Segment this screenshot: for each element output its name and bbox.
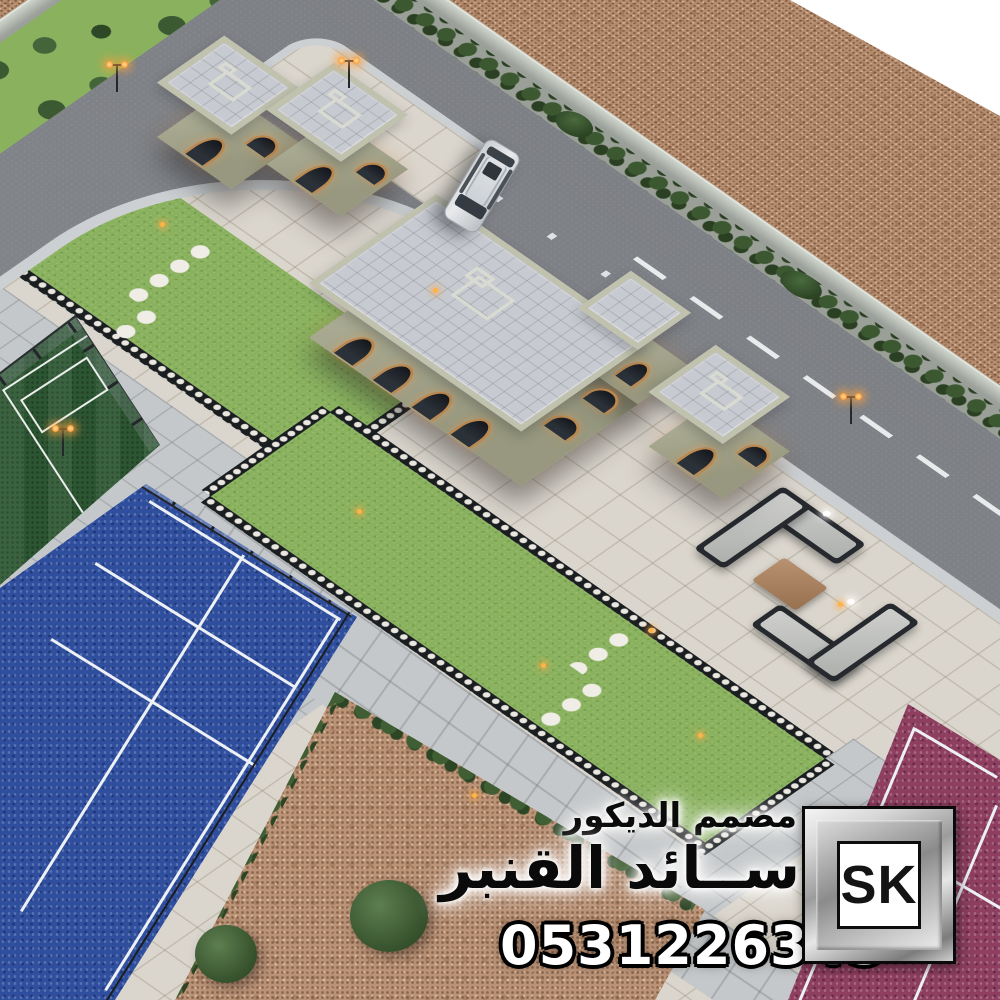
tree xyxy=(195,925,257,983)
lamp-pole xyxy=(62,430,64,456)
patio-light xyxy=(845,598,856,606)
sk-logo-text: SK xyxy=(840,854,917,916)
garden-light xyxy=(472,793,477,798)
lamp-pole xyxy=(348,62,350,88)
aerial-render-scene: مصمم الديكور ســائد القنبر 0531226345 SK xyxy=(0,0,1000,1000)
roof-parapet-step xyxy=(327,89,347,103)
roof-parapet-step xyxy=(709,371,729,385)
street-lamp xyxy=(52,424,74,458)
lamp-glow xyxy=(840,393,847,400)
lamp-pole xyxy=(850,398,852,424)
roof-parapet-step xyxy=(217,61,237,75)
garden-light xyxy=(698,733,703,738)
street-lamp xyxy=(338,56,360,90)
lamp-glow xyxy=(855,393,862,400)
watermark-title: مصمم الديكور xyxy=(564,796,797,836)
garden-light xyxy=(160,222,165,227)
street-lamp xyxy=(840,392,862,426)
garden-light xyxy=(357,509,362,514)
roof-parapet-motif xyxy=(317,97,362,129)
garden-light xyxy=(838,602,843,607)
lamp-glow xyxy=(52,425,59,432)
lamp-glow xyxy=(353,57,360,64)
coffee-table xyxy=(752,557,828,610)
garden-light xyxy=(433,288,438,293)
roof-parapet-step xyxy=(464,266,496,289)
lamp-pole xyxy=(116,66,118,92)
watermark-name: ســائد القنبر xyxy=(439,834,800,902)
sk-logo: SK xyxy=(802,806,956,964)
garden-light xyxy=(541,663,546,668)
roof-parapet-motif xyxy=(451,275,516,321)
roof-parapet-motif xyxy=(207,70,252,102)
lamp-glow xyxy=(67,425,74,432)
street-lamp xyxy=(106,60,128,94)
lamp-glow xyxy=(121,61,128,68)
lamp-glow xyxy=(338,57,345,64)
roof-parapet-motif xyxy=(699,380,744,412)
sk-logo-plate: SK xyxy=(837,841,921,929)
court-line xyxy=(94,562,295,688)
garden-light xyxy=(649,628,654,633)
tree xyxy=(350,880,428,952)
lamp-glow xyxy=(106,61,113,68)
